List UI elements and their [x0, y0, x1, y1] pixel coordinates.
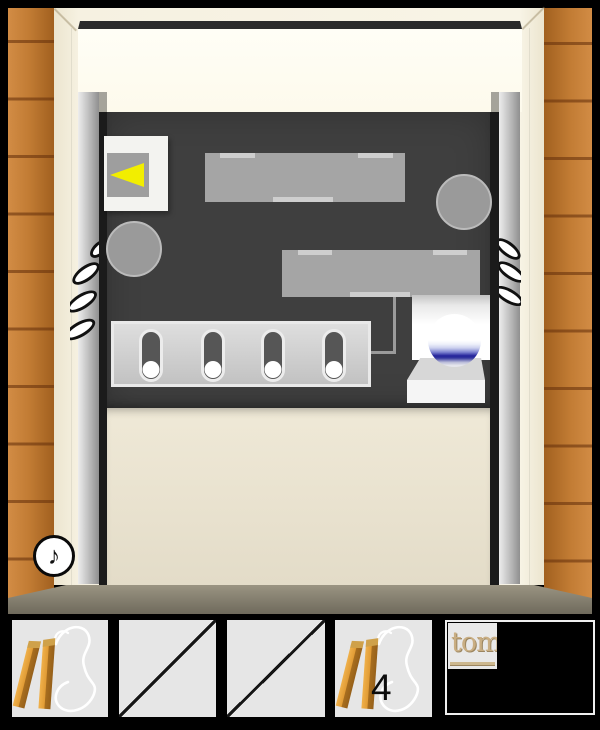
wire-vertical — [393, 297, 396, 354]
picture-frame[interactable] — [104, 136, 168, 211]
slider-ball[interactable] — [205, 361, 222, 378]
pillar-shadow-right — [491, 92, 499, 112]
wood-wall-right — [544, 8, 592, 602]
pillar-right[interactable] — [499, 92, 520, 584]
shelf-upper[interactable] — [205, 153, 405, 202]
shelf-tab — [298, 250, 332, 255]
pillar-shadow-left — [99, 92, 107, 112]
door-lower-panel[interactable] — [107, 408, 490, 585]
item-count-badge: 4 — [371, 667, 392, 709]
finger-icon — [70, 286, 99, 317]
finger-icon — [70, 315, 98, 344]
finger-icon — [70, 258, 99, 289]
slider-track[interactable] — [139, 329, 163, 382]
shelf-tab — [350, 292, 410, 297]
inventory-slot-2-empty[interactable] — [119, 620, 216, 717]
brand-logo-text: tom — [451, 627, 497, 658]
slider-ball[interactable] — [143, 361, 160, 378]
frame-crease-right — [529, 28, 530, 585]
brand-box: tom — [445, 620, 595, 715]
peeking-hand-left[interactable] — [70, 238, 99, 344]
sound-toggle-button[interactable]: ♪ — [33, 535, 75, 577]
inventory-slot-1[interactable] — [12, 620, 108, 717]
shelf-tab — [220, 153, 255, 158]
round-knob-right[interactable] — [436, 174, 492, 230]
door-top-gap — [78, 21, 522, 29]
wire-horizontal — [371, 351, 395, 354]
round-knob-left[interactable] — [106, 221, 162, 277]
slider-track[interactable] — [322, 329, 346, 382]
slider-track[interactable] — [261, 329, 285, 382]
music-note-icon: ♪ — [48, 544, 61, 569]
finger-icon — [499, 282, 521, 310]
brand-logo-underline — [450, 662, 495, 665]
pedestal[interactable] — [407, 380, 485, 403]
slider-track[interactable] — [201, 329, 225, 382]
shelf-tab — [273, 197, 333, 202]
shelf-tab — [433, 250, 467, 255]
finger-icon — [87, 238, 99, 261]
finger-icon — [499, 257, 521, 287]
slider-panel[interactable] — [111, 321, 371, 387]
scene-background: ♪ 4 tom — [0, 0, 600, 730]
shelf-tab — [358, 153, 393, 158]
door-upper-panel[interactable] — [78, 29, 522, 112]
slider-ball[interactable] — [265, 361, 282, 378]
brand-logo-square: tom — [448, 623, 497, 669]
floor — [8, 585, 592, 614]
finger-icon — [499, 238, 521, 264]
arrow-left-icon — [110, 163, 144, 187]
peeking-hand-right[interactable] — [499, 238, 521, 322]
inventory-slot-3-empty[interactable] — [227, 620, 325, 717]
inventory-slot-4[interactable]: 4 — [335, 620, 432, 717]
shelf-lower[interactable] — [282, 250, 480, 297]
glass-marble[interactable] — [428, 314, 481, 367]
slider-ball[interactable] — [326, 361, 343, 378]
wood-wall-left — [8, 8, 54, 602]
